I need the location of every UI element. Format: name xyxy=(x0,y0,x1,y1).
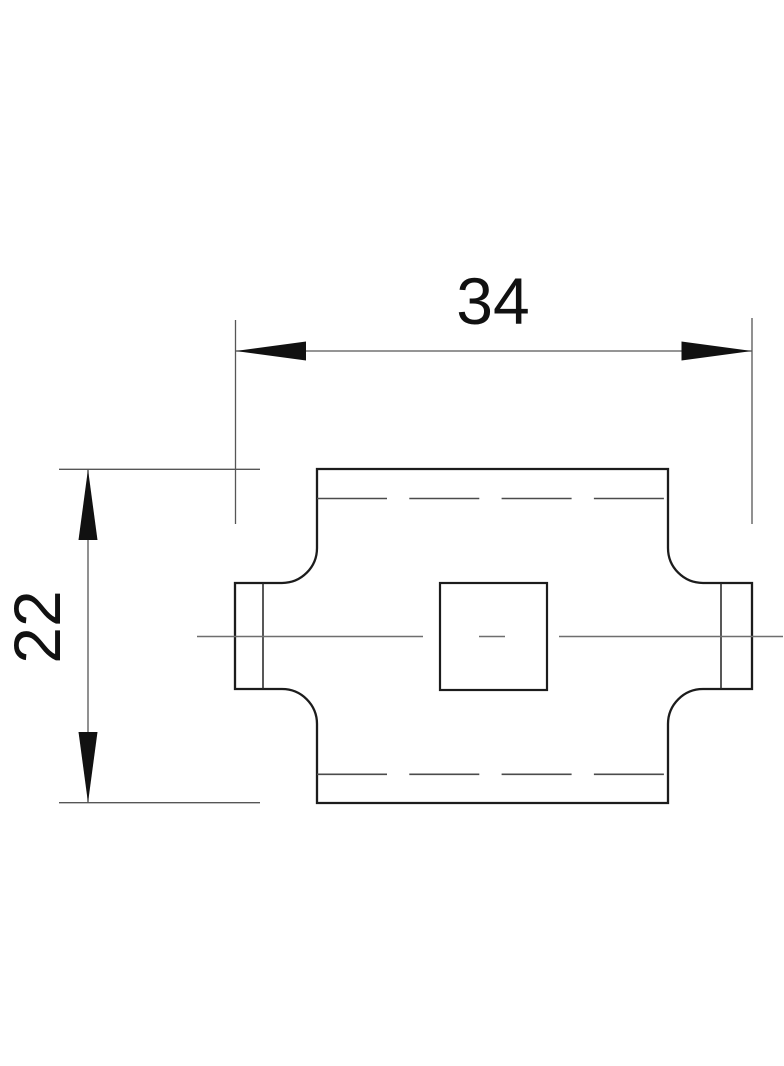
dimension-width-label: 34 xyxy=(456,264,529,338)
dimension-height-label: 22 xyxy=(0,590,74,663)
arrowhead-width-left xyxy=(236,342,307,361)
arrowhead-width-right xyxy=(682,342,753,361)
part-view xyxy=(197,469,783,803)
drawing-canvas: 34 22 xyxy=(0,0,784,1066)
arrowhead-height-top xyxy=(79,469,98,540)
technical-drawing-svg: 34 22 xyxy=(0,0,784,1066)
dimension-width: 34 xyxy=(236,264,753,524)
arrowhead-height-bottom xyxy=(79,732,98,803)
